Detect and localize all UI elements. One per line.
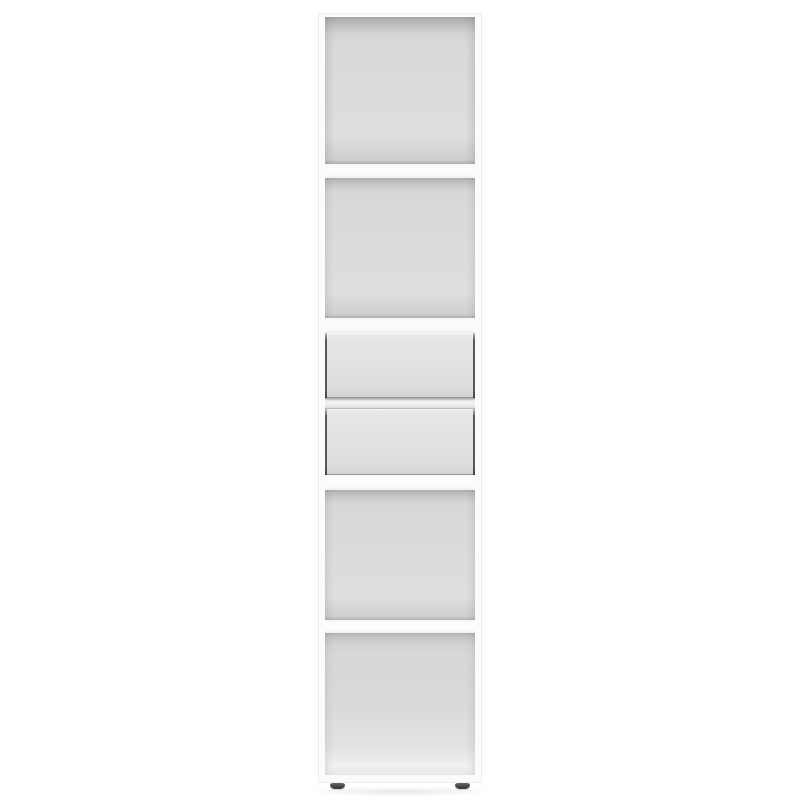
drawer-upper-gap-left (325, 333, 327, 398)
drawer-lower-gap-right (473, 409, 475, 475)
shelf-compartment-2 (325, 178, 475, 318)
drawer-upper (325, 333, 475, 398)
drawer-upper-gap-right (473, 333, 475, 398)
shelf-board-3 (325, 475, 475, 490)
bookcase-frame (318, 13, 482, 783)
shelf-board-4 (325, 620, 475, 633)
bookcase-interior (325, 17, 475, 775)
shelf-compartment-1 (325, 17, 475, 164)
drawer-lower (325, 409, 475, 475)
drawer-lower-gap-left (325, 409, 327, 475)
product-photo (0, 0, 800, 800)
shelf-compartment-4 (325, 633, 475, 775)
shelf-compartment-3 (325, 490, 475, 620)
drawer-divider (325, 398, 475, 409)
shelf-board-1 (325, 164, 475, 178)
ground-shadow (306, 787, 494, 796)
shelf-board-2 (325, 318, 475, 333)
bookcase (318, 13, 482, 790)
